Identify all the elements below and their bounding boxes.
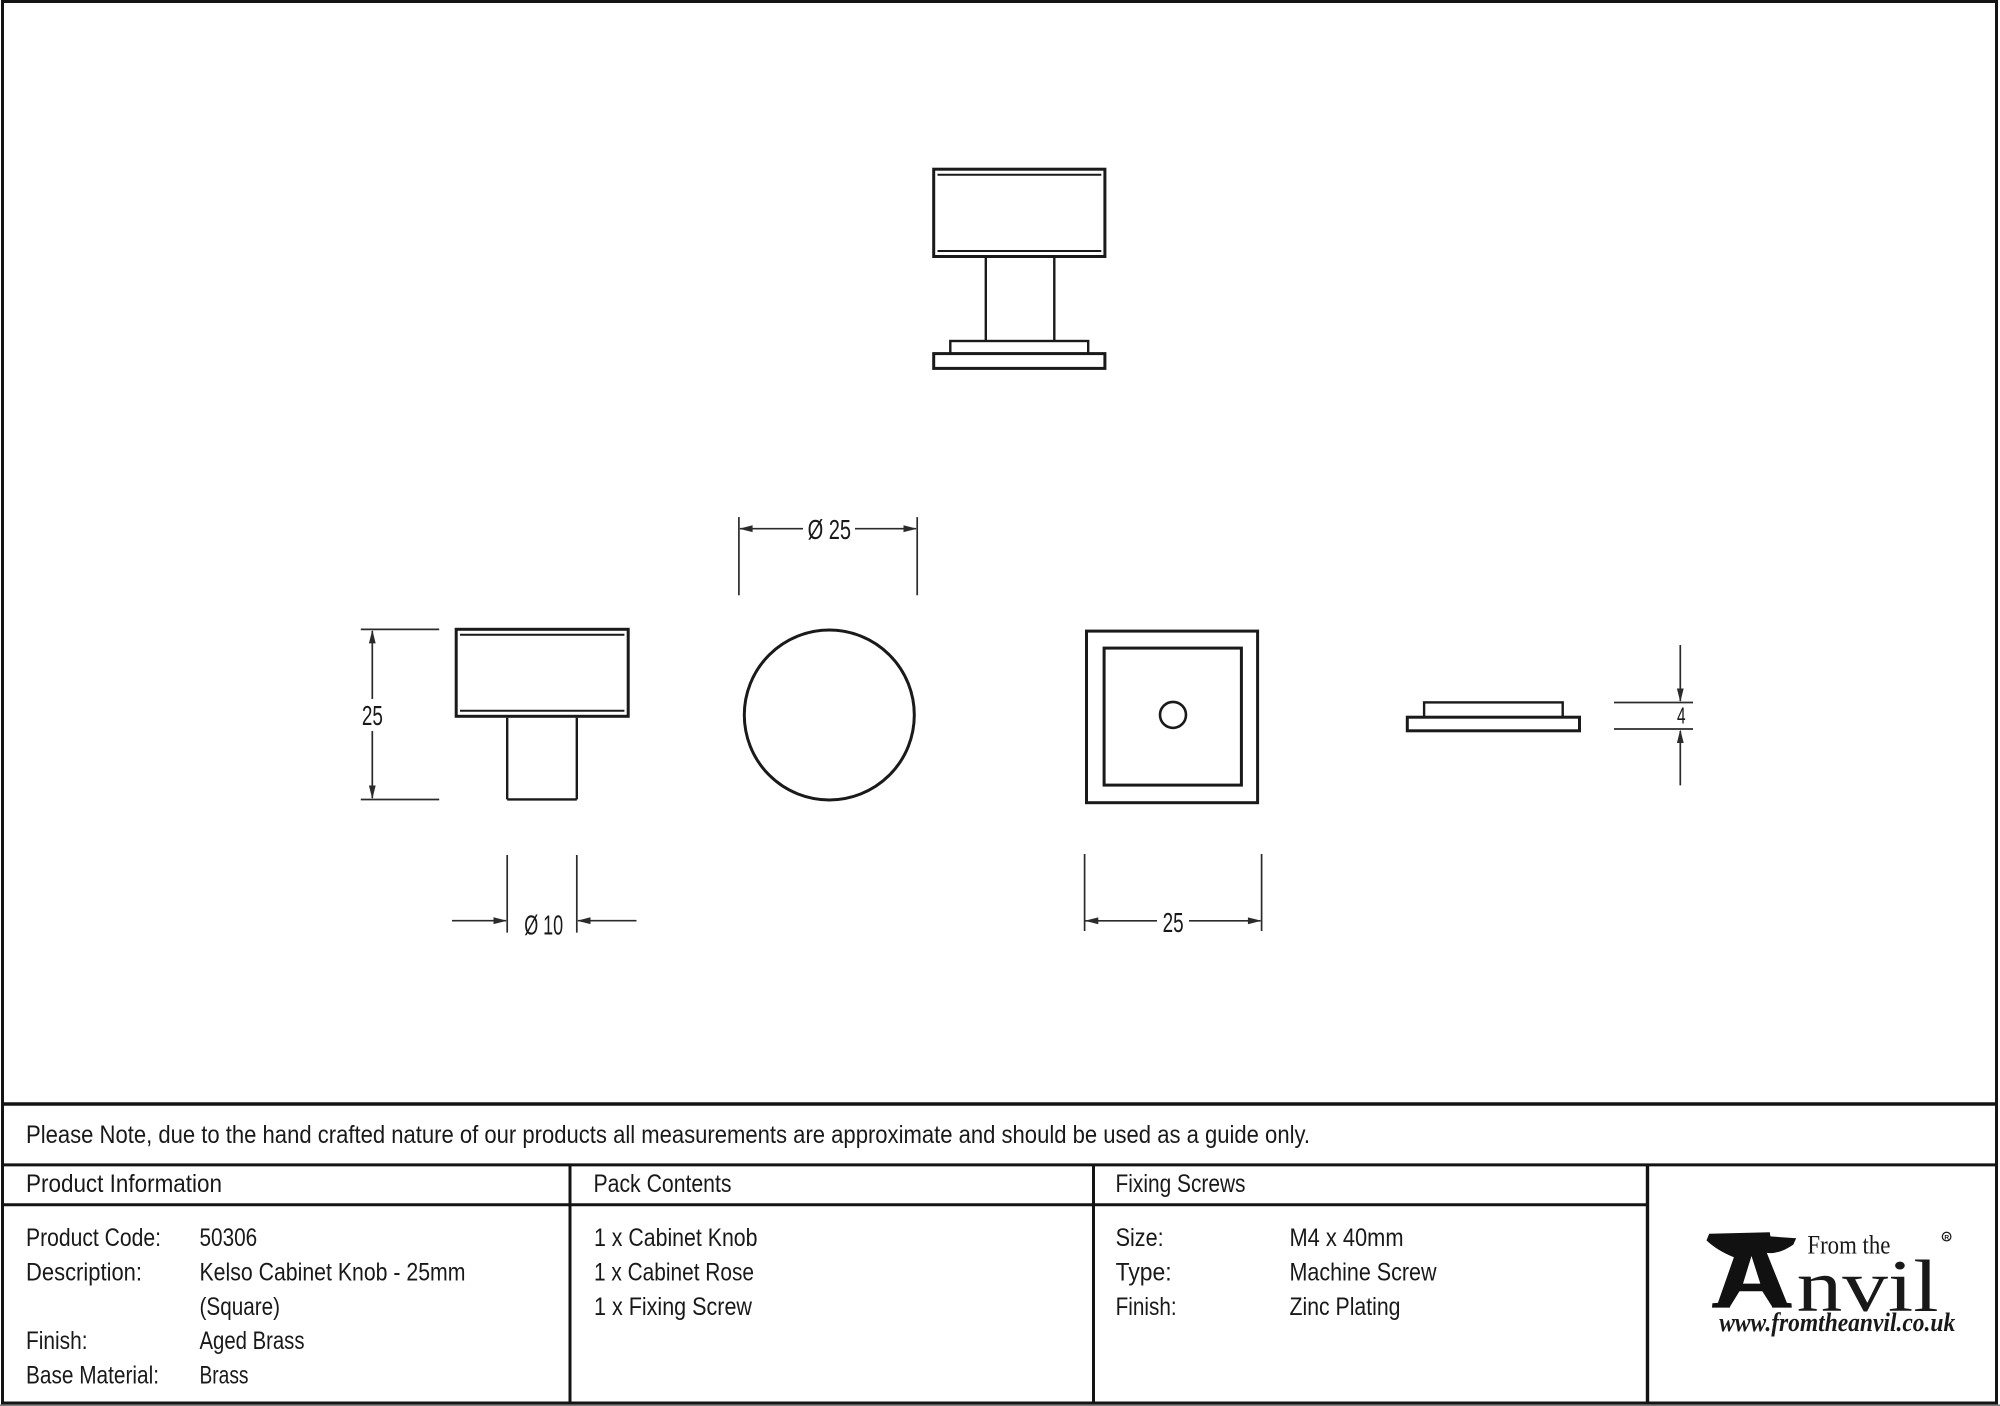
svg-text:Product Information: Product Information	[26, 1171, 222, 1198]
svg-text:www.fromtheanvil.co.uk: www.fromtheanvil.co.uk	[1719, 1308, 1955, 1337]
svg-text:1 x Fixing Screw: 1 x Fixing Screw	[594, 1294, 752, 1321]
svg-text:50306: 50306	[200, 1225, 258, 1252]
svg-text:25: 25	[1163, 907, 1184, 938]
svg-text:Machine Screw: Machine Screw	[1290, 1259, 1437, 1286]
svg-text:Ø 10: Ø 10	[524, 910, 563, 941]
svg-text:Finish:: Finish:	[1116, 1294, 1177, 1321]
svg-text:Pack Contents: Pack Contents	[594, 1171, 732, 1198]
svg-text:Brass: Brass	[200, 1363, 249, 1390]
svg-text:Finish:: Finish:	[26, 1328, 88, 1355]
svg-text:Product Code:: Product Code:	[26, 1225, 161, 1252]
svg-text:R: R	[1944, 1235, 1949, 1242]
svg-text:Fixing Screws: Fixing Screws	[1116, 1171, 1246, 1198]
svg-text:(Square): (Square)	[200, 1294, 281, 1321]
svg-text:Type:: Type:	[1116, 1259, 1172, 1286]
svg-text:1 x Cabinet Knob: 1 x Cabinet Knob	[594, 1225, 758, 1252]
svg-text:1 x Cabinet Rose: 1 x Cabinet Rose	[594, 1259, 754, 1286]
svg-text:25: 25	[362, 700, 383, 731]
svg-text:Base Material:: Base Material:	[26, 1363, 159, 1390]
svg-text:Description:: Description:	[26, 1259, 142, 1286]
svg-text:Aged Brass: Aged Brass	[200, 1328, 305, 1355]
svg-text:M4 x 40mm: M4 x 40mm	[1290, 1225, 1404, 1252]
svg-text:4: 4	[1677, 703, 1686, 729]
svg-text:Ø 25: Ø 25	[808, 514, 852, 545]
svg-text:Please Note, due to the hand c: Please Note, due to the hand crafted nat…	[26, 1122, 1310, 1149]
svg-text:Kelso Cabinet Knob - 25mm: Kelso Cabinet Knob - 25mm	[200, 1259, 466, 1286]
svg-text:Zinc Plating: Zinc Plating	[1290, 1294, 1401, 1321]
svg-text:Size:: Size:	[1116, 1225, 1164, 1252]
